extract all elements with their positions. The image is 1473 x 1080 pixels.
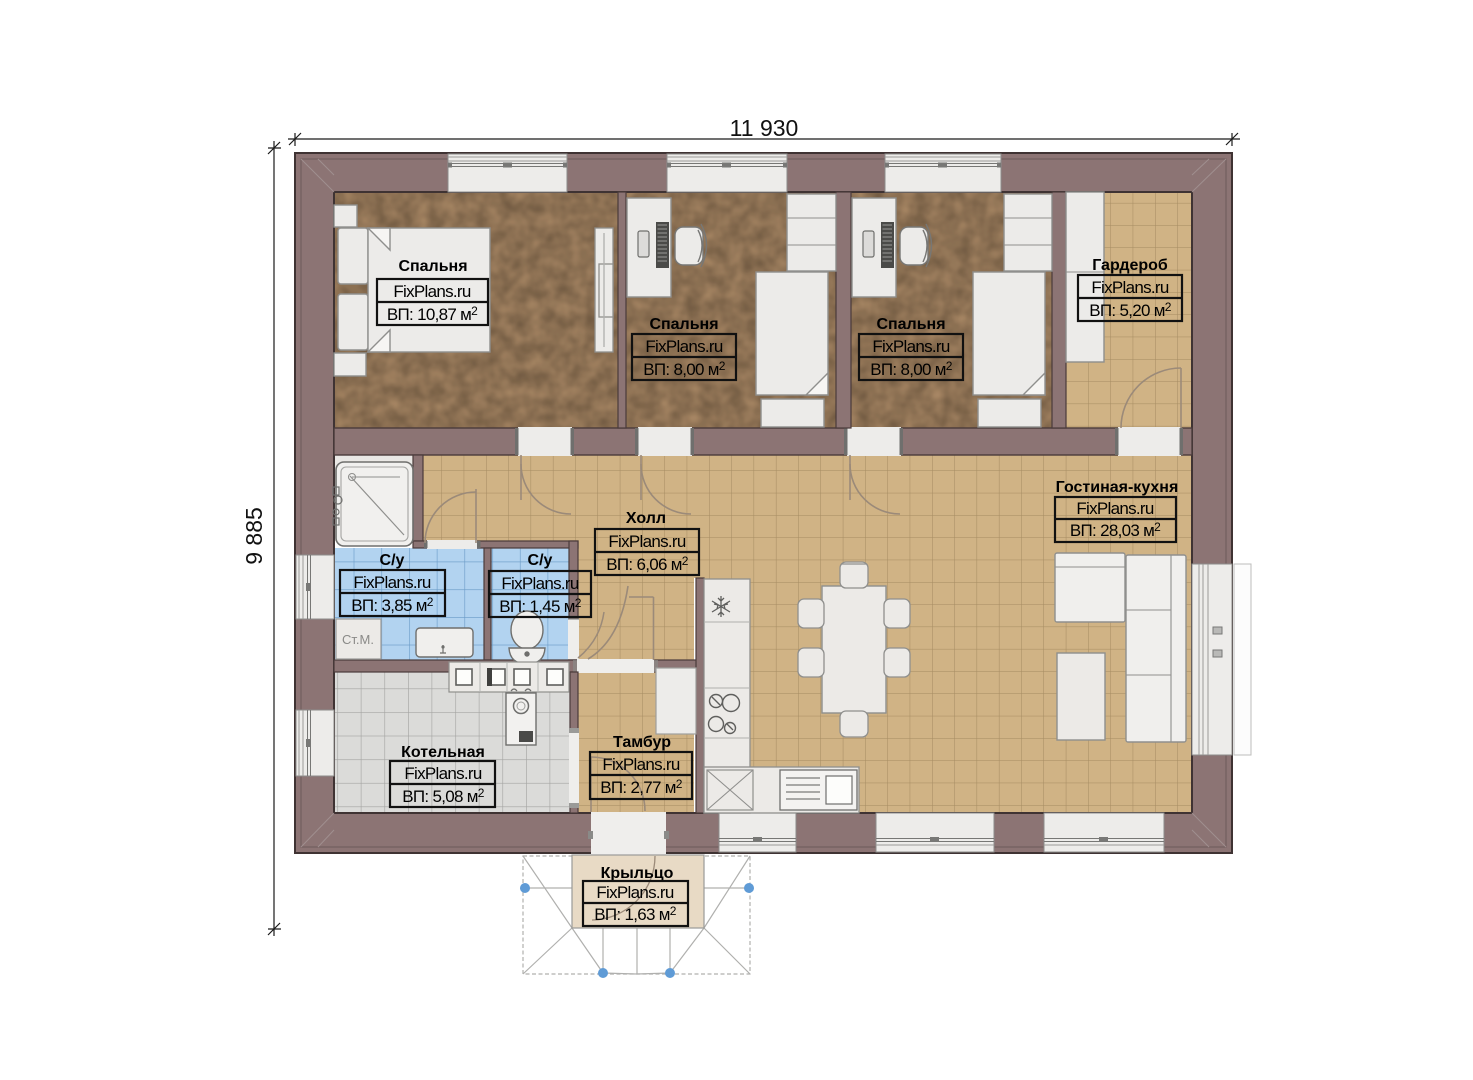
svg-text:ВП: 3,85 м2: ВП: 3,85 м2 [351, 595, 434, 615]
svg-text:Котельная: Котельная [401, 744, 485, 761]
svg-text:FixPlans.ru: FixPlans.ru [608, 532, 686, 551]
svg-text:Спальня: Спальня [398, 258, 467, 275]
svg-text:11 930: 11 930 [730, 115, 799, 141]
svg-text:Тамбур: Тамбур [613, 734, 671, 751]
svg-text:Холл: Холл [626, 510, 666, 527]
svg-text:ВП: 8,00 м2: ВП: 8,00 м2 [643, 359, 726, 379]
svg-text:ВП: 28,03 м2: ВП: 28,03 м2 [1070, 520, 1161, 540]
svg-text:Крыльцо: Крыльцо [601, 865, 674, 882]
svg-text:FixPlans.ru: FixPlans.ru [645, 337, 723, 356]
svg-text:Спальня: Спальня [649, 316, 718, 333]
svg-text:Спальня: Спальня [876, 316, 945, 333]
svg-text:Гостиная-кухня: Гостиная-кухня [1056, 479, 1179, 496]
svg-text:FixPlans.ru: FixPlans.ru [596, 883, 674, 902]
svg-text:FixPlans.ru: FixPlans.ru [404, 764, 482, 783]
svg-text:Ст.М.: Ст.М. [342, 632, 374, 647]
svg-text:FixPlans.ru: FixPlans.ru [393, 282, 471, 301]
svg-text:ВП: 6,06 м2: ВП: 6,06 м2 [606, 554, 689, 574]
svg-text:С/у: С/у [380, 552, 405, 569]
svg-text:С/у: С/у [528, 552, 553, 569]
svg-text:FixPlans.ru: FixPlans.ru [1091, 278, 1169, 297]
svg-text:ВП: 5,20 м2: ВП: 5,20 м2 [1089, 300, 1172, 320]
svg-text:Гардероб: Гардероб [1092, 257, 1168, 274]
svg-text:FixPlans.ru: FixPlans.ru [872, 337, 950, 356]
svg-text:ВП: 5,08 м2: ВП: 5,08 м2 [402, 786, 485, 806]
svg-text:ВП: 2,77 м2: ВП: 2,77 м2 [600, 777, 683, 797]
svg-text:ВП: 1,45 м2: ВП: 1,45 м2 [499, 596, 582, 616]
svg-text:FixPlans.ru: FixPlans.ru [602, 755, 680, 774]
svg-text:ВП: 1,63 м2: ВП: 1,63 м2 [594, 904, 677, 924]
svg-text:ВП: 8,00 м2: ВП: 8,00 м2 [870, 359, 953, 379]
svg-text:9 885: 9 885 [241, 507, 267, 565]
svg-text:FixPlans.ru: FixPlans.ru [353, 573, 431, 592]
svg-text:FixPlans.ru: FixPlans.ru [501, 574, 579, 593]
svg-text:FixPlans.ru: FixPlans.ru [1076, 499, 1154, 518]
svg-text:ВП: 10,87 м2: ВП: 10,87 м2 [387, 304, 478, 324]
